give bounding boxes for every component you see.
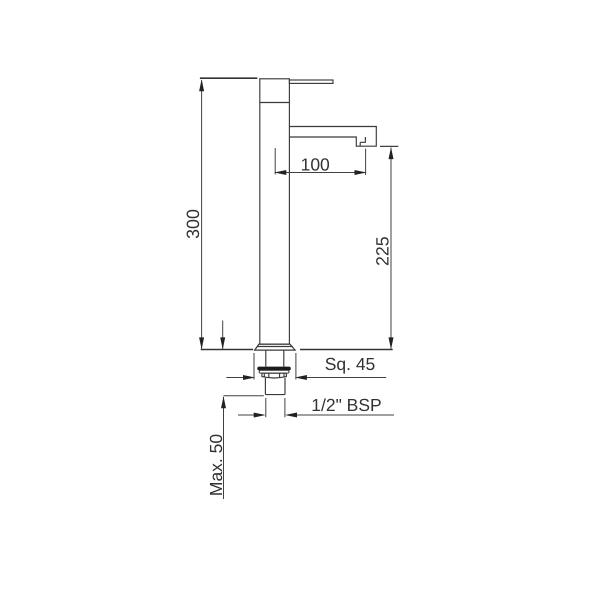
svg-text:300: 300 — [183, 209, 203, 239]
svg-text:100: 100 — [301, 154, 330, 174]
svg-text:Sq. 45: Sq. 45 — [325, 354, 376, 374]
svg-text:225: 225 — [373, 236, 393, 266]
svg-text:1/2" BSP: 1/2" BSP — [311, 395, 381, 415]
svg-text:Max. 50: Max. 50 — [206, 434, 226, 497]
